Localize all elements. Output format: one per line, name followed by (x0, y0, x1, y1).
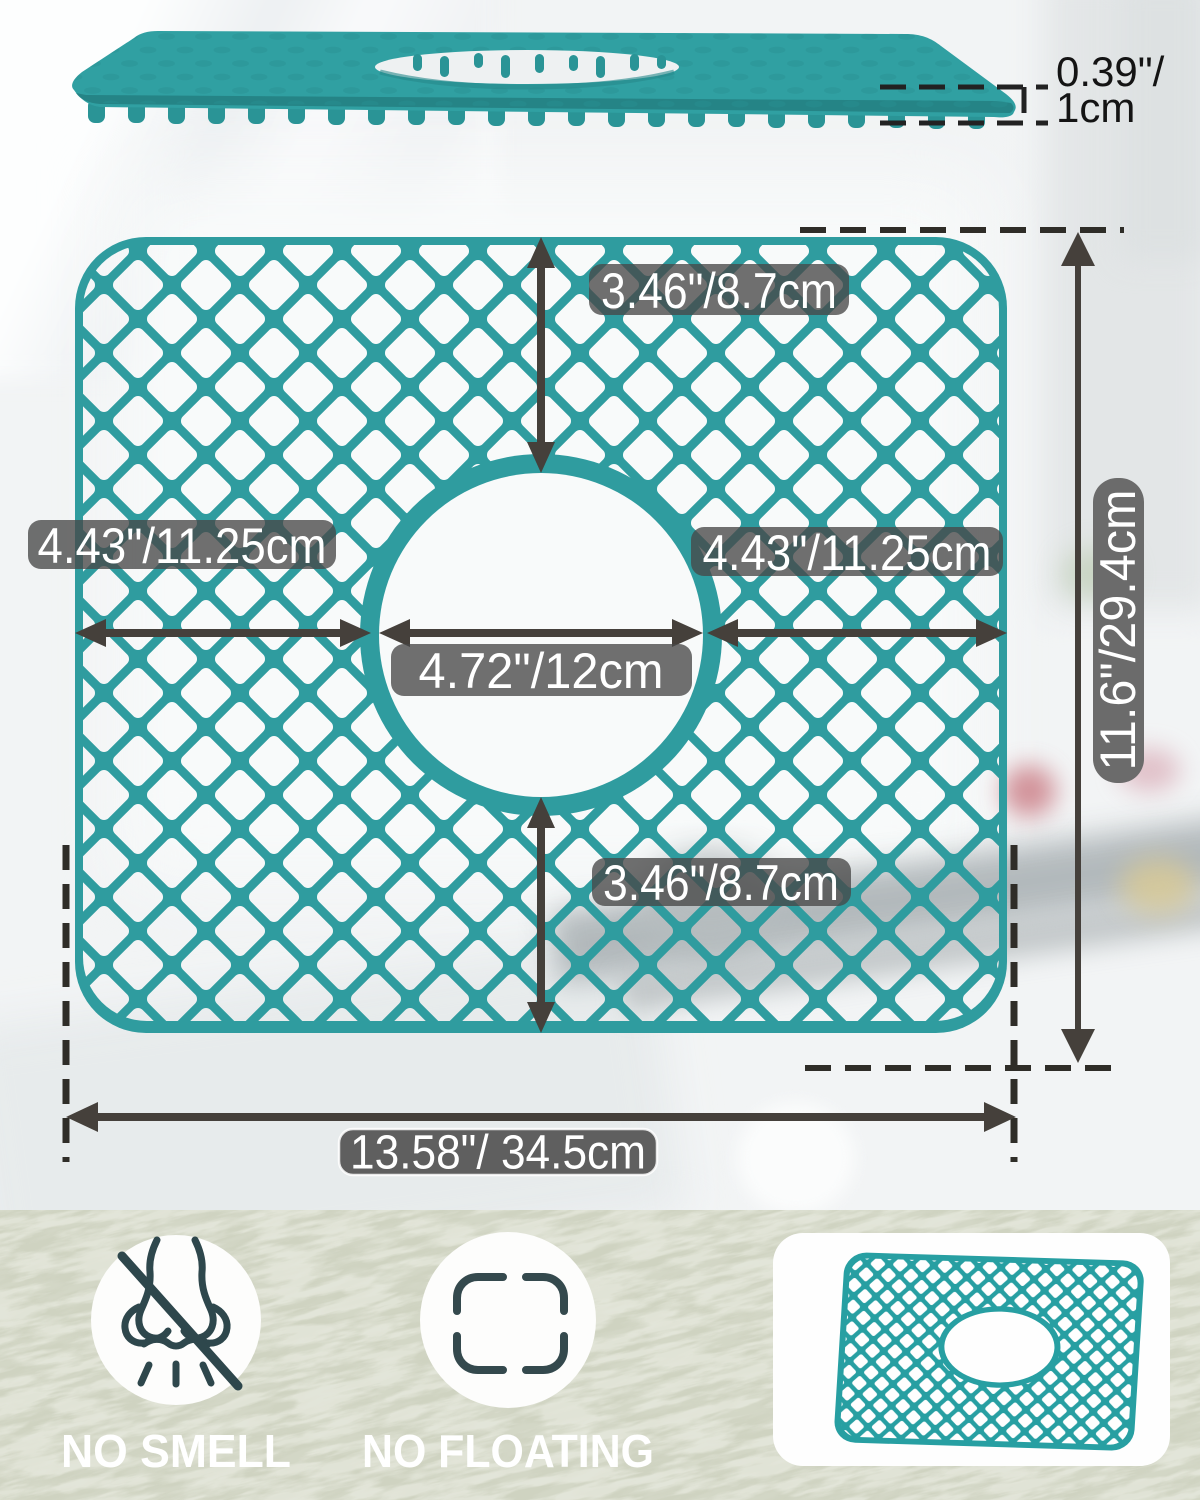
svg-text:11.6"/29.4cm: 11.6"/29.4cm (1090, 490, 1146, 771)
svg-text:NO FLOATING: NO FLOATING (362, 1425, 654, 1477)
svg-text:4.43"/11.25cm: 4.43"/11.25cm (703, 525, 992, 581)
svg-text:13.58"/ 34.5cm: 13.58"/ 34.5cm (350, 1127, 646, 1180)
svg-text:4.43"/11.25cm: 4.43"/11.25cm (38, 518, 327, 574)
svg-text:4.72"/12cm: 4.72"/12cm (419, 643, 664, 699)
svg-text:3.46"/8.7cm: 3.46"/8.7cm (603, 855, 839, 911)
svg-text:1cm: 1cm (1056, 84, 1135, 131)
svg-text:3.46"/8.7cm: 3.46"/8.7cm (601, 263, 837, 319)
svg-text:NO SMELL: NO SMELL (61, 1425, 291, 1477)
